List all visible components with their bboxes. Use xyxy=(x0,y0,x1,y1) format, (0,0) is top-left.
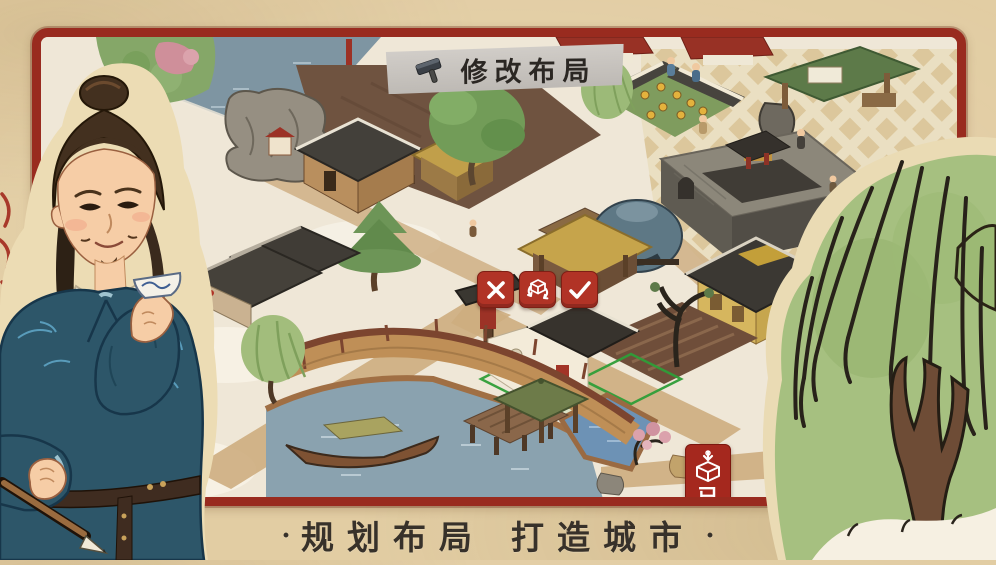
rotate-cube-icon xyxy=(525,277,551,303)
tagline-left-dot: · xyxy=(281,519,291,552)
isometric-city-map[interactable] xyxy=(41,37,957,497)
tagline: ·规划布局打造城市· xyxy=(0,511,996,559)
hammer-icon xyxy=(413,55,447,85)
confirm-button[interactable] xyxy=(561,271,598,308)
game-viewport: 修改布局 xyxy=(32,28,966,506)
city-scene[interactable]: 修改布局 xyxy=(41,37,957,497)
store-button-partial-label: 已 xyxy=(698,486,719,497)
cancel-button[interactable] xyxy=(477,271,514,308)
tagline-part2: 打造城市 xyxy=(511,521,695,557)
check-icon xyxy=(568,279,592,301)
tagline-part1: 规划布局 xyxy=(301,521,485,557)
edit-mode-label: 修改布局 xyxy=(460,49,596,89)
x-icon xyxy=(485,279,507,301)
store-building-button[interactable]: 已 xyxy=(685,444,731,497)
red-ink-decoration xyxy=(0,186,18,316)
rotate-button[interactable] xyxy=(519,271,556,308)
store-box-icon xyxy=(693,450,723,484)
edit-action-bar xyxy=(477,271,598,308)
tagline-right-dot: · xyxy=(705,519,715,552)
